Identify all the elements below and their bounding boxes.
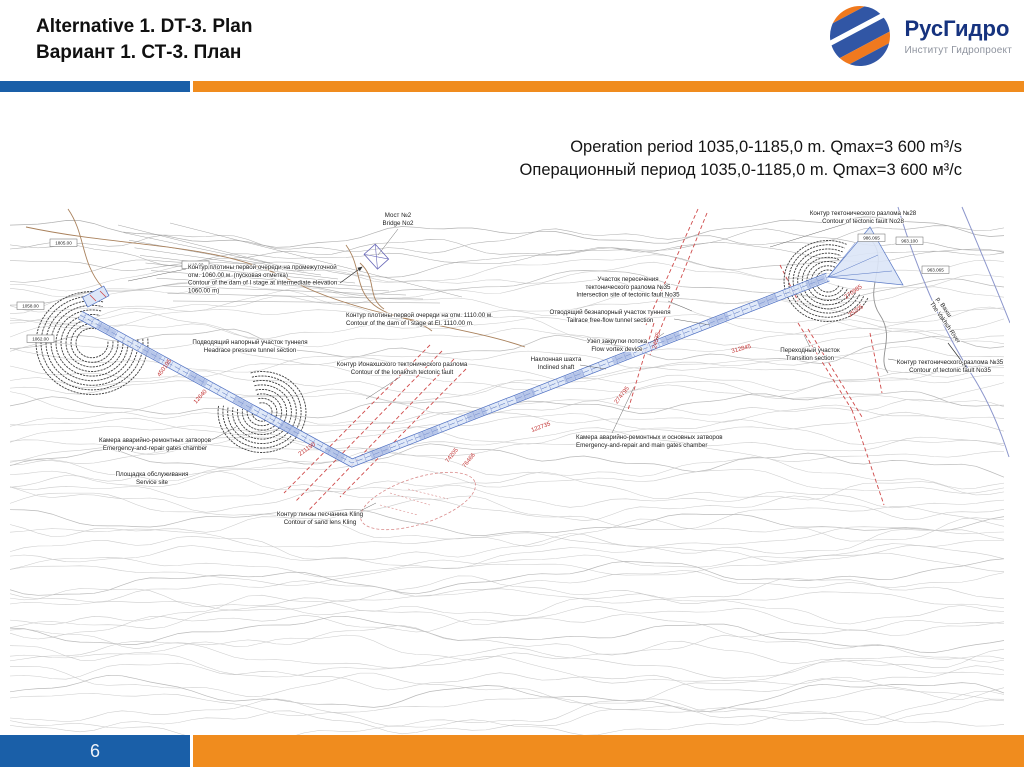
map-label: Contour of tectonic fault No28 (822, 218, 904, 225)
fault-line (340, 369, 466, 497)
slide-title-en: Alternative 1. DT-3. Plan (36, 14, 252, 40)
elevation-value: 963.065 (927, 268, 944, 273)
intake-detail (83, 286, 109, 307)
chainage-label: 12640 (193, 388, 209, 405)
map-label: тектонического разлома №35 (586, 284, 672, 291)
caption-ru: Операционный период 1035,0-1185,0 m. Qma… (520, 159, 962, 182)
footer-bar-orange (193, 735, 1024, 767)
page-number-bar: 6 (0, 735, 190, 767)
chainage-label: 312845 (731, 344, 753, 355)
map-label: Отводящий безнапорный участок туннеля (549, 309, 670, 316)
accent-bar-blue (0, 81, 190, 92)
contour-line (10, 635, 1004, 668)
contour-line (10, 324, 1004, 352)
survey-line (173, 301, 440, 303)
contour-line (10, 485, 1004, 508)
operation-period-caption: Operation period 1035,0-1185,0 m. Qmax=3… (520, 136, 962, 182)
elevation-value: 1062.00 (32, 337, 49, 342)
contour-line (10, 594, 1004, 625)
contour-line (10, 589, 1004, 611)
page-number: 6 (90, 741, 100, 762)
caption-en: Operation period 1035,0-1185,0 m. Qmax=3… (520, 136, 962, 159)
map-label: Bridge No2 (383, 220, 415, 227)
map-label: Подводящий напорный участок туннеля (192, 339, 307, 346)
rushydro-sphere-icon (828, 4, 892, 68)
leader-line (366, 377, 400, 399)
chainage-label: 274795 (614, 385, 631, 405)
contour-line (10, 527, 1004, 547)
presentation-slide: Alternative 1. DT-3. Plan Вариант 1. СТ-… (0, 0, 1024, 767)
map-label: Участок пересечения (597, 276, 658, 283)
elevation-value: 1058.00 (22, 304, 39, 309)
contour-line (10, 493, 1004, 529)
fault-line (808, 329, 862, 417)
fault-line (628, 323, 654, 410)
map-label: отм. 1060.00 м. (пусковая отметка) (188, 272, 288, 279)
map-label: 1060.00 m) (188, 287, 219, 294)
sand-lens-contour (354, 461, 482, 542)
map-label: Contour of sand lens Kling (284, 519, 357, 526)
accent-bar-orange (193, 81, 1024, 92)
contour-line (10, 711, 1004, 735)
map-label: Контур плотины первой очереди на промежу… (188, 264, 337, 271)
map-label: Service site (136, 479, 169, 486)
map-label: Узел закрутки потока (587, 338, 648, 345)
map-label: Контур линзы песчаника Kling (277, 511, 364, 518)
contour-line (10, 614, 1004, 639)
logo-text: РусГидро Институт Гидропроект (905, 16, 1013, 56)
contour-line (10, 606, 1004, 630)
map-label: Headrace pressure tunnel section (204, 347, 297, 354)
chainage-labels: 4501951264074205764662111901227352747952… (157, 284, 866, 469)
contour-line (10, 700, 1004, 734)
map-label: Flow vortex device (591, 346, 643, 353)
map-label: Камера аварийно-ремонтных и основных зат… (576, 434, 723, 441)
rushydro-logo: РусГидро Институт Гидропроект (828, 4, 1013, 68)
map-label: Контур плотины первой очереди на отм. 11… (346, 312, 493, 319)
map-label: Мост №2 (385, 212, 412, 219)
contour-line (10, 312, 1004, 346)
map-label: Контур тектонического разлома №28 (810, 210, 917, 217)
leader-line (668, 301, 692, 311)
header-accent-bar (0, 81, 1024, 92)
elevation-value: 963.100 (901, 239, 918, 244)
map-label: Transition section (786, 355, 835, 362)
fault-line (870, 333, 882, 393)
chainage-label: 270985 (844, 284, 864, 301)
map-label: Переходный участок (780, 347, 840, 354)
map-label: Contour of the Ionakhsh tectonic fault (351, 369, 454, 376)
contour-line (10, 487, 1004, 521)
contour-line (10, 675, 1004, 712)
map-label: Contour of the dam of I stage at interme… (188, 280, 338, 287)
map-label: Tailrace free-flow tunnel section (567, 317, 654, 324)
contour-line (10, 510, 1004, 536)
bridge-pointer-arrow (340, 267, 362, 283)
contour-line (10, 625, 1004, 662)
map-label: Контур тектонического разлома №35 (897, 359, 1004, 366)
map-label: Контур Ионахшского тектонического разлом… (337, 361, 468, 368)
chainage-label: 122735 (531, 421, 552, 434)
slide-title: Alternative 1. DT-3. Plan Вариант 1. СТ-… (36, 14, 252, 66)
contour-line (10, 691, 1004, 726)
map-label: Emergency-and-repair gates chamber (103, 445, 207, 452)
chainage-label: 211190 (298, 441, 318, 457)
slide-title-ru: Вариант 1. СТ-3. План (36, 40, 252, 66)
map-label: Наклонная шахта (531, 356, 582, 363)
elevation-value: 986.065 (863, 236, 880, 241)
footer-bar: 6 (0, 735, 1024, 767)
logo-brand: РусГидро (905, 16, 1013, 42)
map-label: Площадка обслуживания (116, 471, 189, 478)
contour-line (10, 666, 1004, 703)
map-label: Inclined shaft (538, 364, 575, 371)
chainage-label: 76466 (462, 452, 477, 469)
fault-line (646, 209, 698, 325)
river-bank (962, 207, 1010, 323)
plan-drawing: 4501951264074205764662111901227352747952… (10, 205, 1010, 735)
leader-line (770, 223, 848, 247)
map-label: Emergency-and-repair and main gates cham… (576, 442, 707, 449)
contour-line (10, 570, 1004, 602)
logo-sub-brand: Институт Гидропроект (905, 45, 1013, 56)
leader-line (378, 229, 398, 255)
map-label: Contour of tectonic fault No35 (909, 367, 991, 374)
map-label: Intersection site of tectonic fault No35 (576, 292, 680, 299)
map-label: Камера аварийно-ремонтных затворов (99, 437, 212, 444)
map-label: Contour of the dam of I stage at El. 111… (346, 320, 474, 327)
elevation-value: 1805.00 (55, 241, 72, 246)
